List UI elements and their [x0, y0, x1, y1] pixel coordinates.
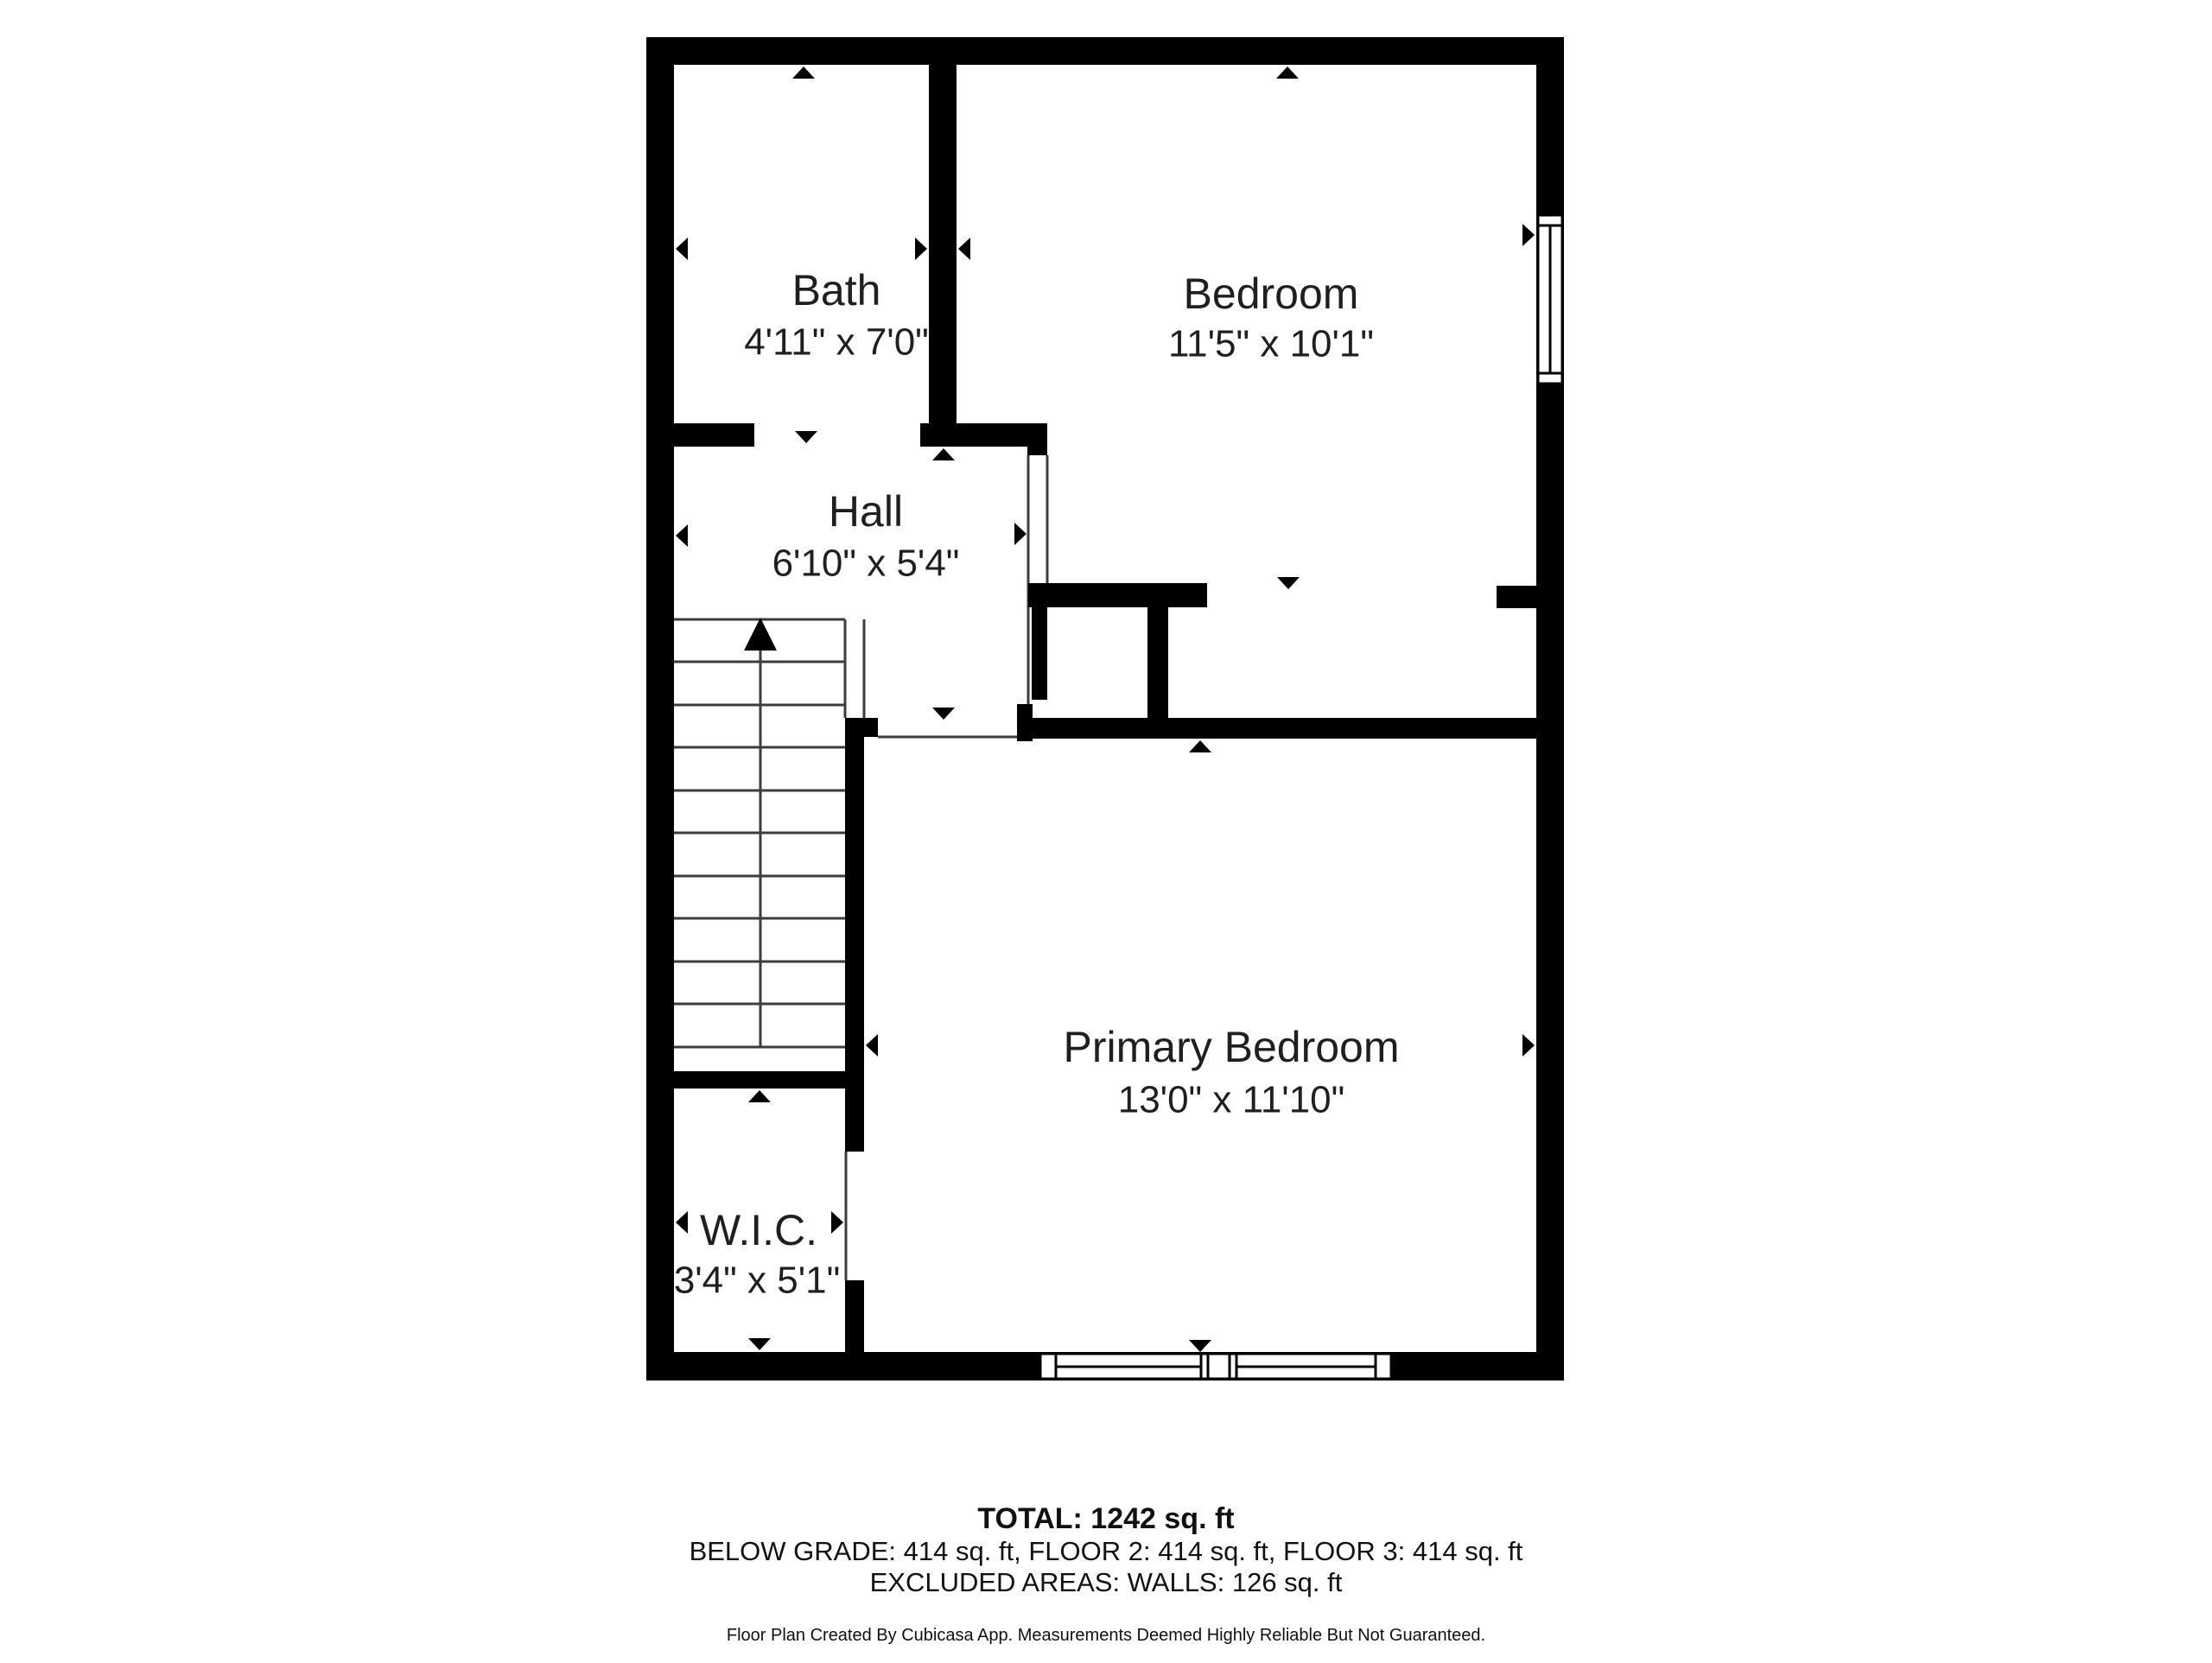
dimension-arrow-up-icon	[1189, 740, 1211, 752]
wall	[1497, 586, 1536, 608]
dimension-arrow-up-icon	[932, 448, 955, 460]
total-area-text: TOTAL: 1242 sq. ft	[0, 1501, 2212, 1536]
summary-block: TOTAL: 1242 sq. ft BELOW GRADE: 414 sq. …	[0, 1501, 2212, 1647]
dimension-arrow-down-icon	[1277, 577, 1300, 589]
dimension-arrow-right-icon	[831, 1211, 843, 1234]
room-label-primary-bedroom: Primary Bedroom	[1064, 1023, 1400, 1071]
wall	[674, 1071, 845, 1089]
wall	[845, 1280, 864, 1352]
floor-plan-drawing: Bath4'11" x 7'0"Bedroom11'5" x 10'1"Hall…	[0, 0, 2212, 1659]
room-dims-wic: 3'4" x 5'1"	[674, 1260, 840, 1302]
wall	[1028, 583, 1207, 607]
floor-plan-page: { "plan": { "wall_color": "#000000", "li…	[0, 0, 2212, 1659]
room-dims-bath: 4'11" x 7'0"	[744, 321, 929, 364]
dimension-arrow-down-icon	[1189, 1340, 1211, 1352]
disclaimer-text: Floor Plan Created By Cubicasa App. Meas…	[0, 1624, 2212, 1647]
room-dims-bedroom: 11'5" x 10'1"	[1168, 323, 1374, 365]
room-dims-hall: 6'10" x 5'4"	[772, 543, 960, 585]
stairs-up-arrow-icon	[744, 618, 777, 651]
wall	[646, 37, 674, 1381]
dimension-arrow-right-icon	[1522, 1034, 1535, 1057]
dimension-arrow-left-icon	[958, 238, 970, 260]
dimension-arrow-left-icon	[676, 524, 688, 547]
room-dims-primary-bedroom: 13'0" x 11'10"	[1118, 1079, 1345, 1121]
wall	[1027, 423, 1047, 455]
dimension-arrow-down-icon	[748, 1338, 771, 1350]
dimension-arrow-left-icon	[676, 1211, 688, 1234]
excluded-areas-text: EXCLUDED AREAS: WALLS: 126 sq. ft	[0, 1567, 2212, 1598]
wall	[845, 718, 864, 1152]
wall	[1017, 718, 1536, 739]
floor-breakdown-text: BELOW GRADE: 414 sq. ft, FLOOR 2: 414 sq…	[0, 1536, 2212, 1567]
dimension-arrow-up-icon	[1276, 67, 1299, 79]
dimension-arrow-left-icon	[866, 1034, 878, 1057]
dimension-arrow-down-icon	[932, 708, 955, 720]
room-label-wic: W.I.C.	[700, 1206, 817, 1254]
dimension-arrow-left-icon	[676, 238, 688, 260]
room-label-hall: Hall	[829, 487, 903, 536]
dimension-arrow-up-icon	[748, 1090, 771, 1102]
wall	[646, 37, 1564, 65]
dimension-arrow-up-icon	[792, 67, 815, 79]
wall	[920, 423, 1046, 447]
room-label-bedroom: Bedroom	[1184, 270, 1359, 318]
wall	[929, 37, 957, 429]
wall	[1032, 583, 1047, 700]
room-label-bath: Bath	[792, 266, 881, 314]
wall	[674, 423, 754, 447]
dimension-arrow-right-icon	[1522, 224, 1535, 246]
dimension-arrow-down-icon	[795, 431, 817, 443]
wall	[1017, 704, 1033, 741]
dimension-arrow-right-icon	[915, 238, 927, 260]
floor-plan-canvas: Bath4'11" x 7'0"Bedroom11'5" x 10'1"Hall…	[0, 0, 2212, 1659]
dimension-arrow-right-icon	[1014, 523, 1027, 545]
